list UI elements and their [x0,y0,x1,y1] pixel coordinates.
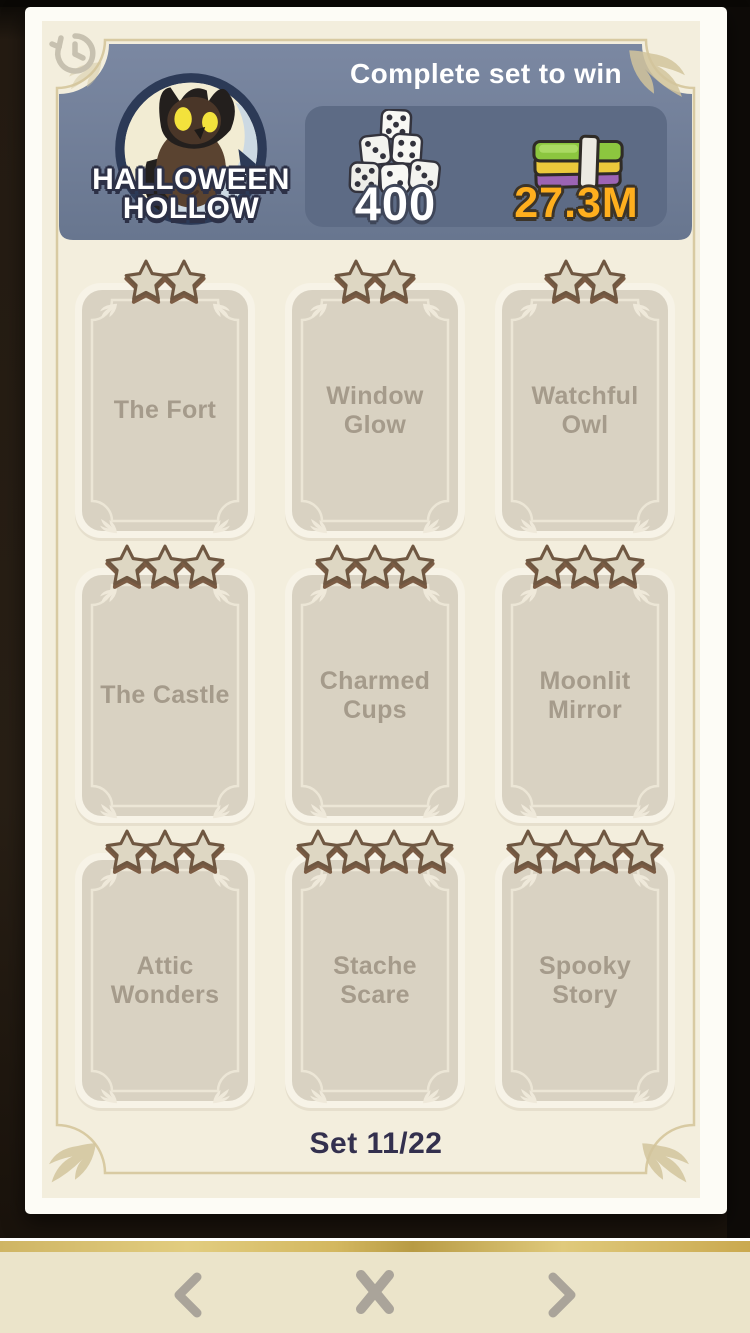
sticker-card[interactable]: The Castle [75,568,255,823]
background-shade [727,0,750,1240]
card-name: Charmed Cups [285,568,465,823]
cash-reward-value: 27.3M [486,179,667,228]
reward-cash: 27.3M [486,106,667,227]
chevron-left-icon [170,1270,206,1320]
set-header-banner: HALLOWEEN HOLLOW Complete set to win [59,44,692,240]
bottom-navbar [0,1238,750,1333]
card-name: Spooky Story [495,853,675,1108]
cards-grid: The Fort Window Glow [75,283,675,1108]
previous-set-button[interactable] [170,1270,206,1325]
card-name: Stache Scare [285,853,465,1108]
sticker-card[interactable]: The Fort [75,283,255,538]
reward-dice: 400 [305,106,486,227]
card-name: Window Glow [285,283,465,538]
card-name: The Fort [75,283,255,538]
history-icon [47,28,101,78]
background-shade [0,0,750,7]
card-name: Moonlit Mirror [495,568,675,823]
set-logo-line2: HOLLOW [71,195,311,224]
history-back-button[interactable] [47,28,101,78]
sticker-card[interactable]: Moonlit Mirror [495,568,675,823]
x-icon [352,1266,398,1318]
sticker-card[interactable]: Watchful Owl [495,283,675,538]
navbar-gold-trim [0,1241,750,1252]
sticker-card[interactable]: Charmed Cups [285,568,465,823]
rewards-panel: 400 27.3M [305,106,667,227]
card-name: The Castle [75,568,255,823]
album-screen: HALLOWEEN HOLLOW Complete set to win [0,0,750,1333]
sticker-card[interactable]: Attic Wonders [75,853,255,1108]
sticker-card[interactable]: Spooky Story [495,853,675,1108]
set-logo-title: HALLOWEEN HOLLOW [71,166,311,223]
chevron-right-icon [544,1270,580,1320]
dice-reward-value: 400 [305,176,486,231]
card-name: Watchful Owl [495,283,675,538]
close-button[interactable] [352,1266,398,1323]
complete-set-text: Complete set to win [305,58,667,90]
next-set-button[interactable] [544,1270,580,1325]
album-page: HALLOWEEN HOLLOW Complete set to win [25,7,727,1214]
card-name: Attic Wonders [75,853,255,1108]
sticker-card[interactable]: Stache Scare [285,853,465,1108]
sticker-card[interactable]: Window Glow [285,283,465,538]
set-logo-line1: HALLOWEEN [71,166,311,195]
set-progress-label: Set 11/22 [25,1127,727,1161]
